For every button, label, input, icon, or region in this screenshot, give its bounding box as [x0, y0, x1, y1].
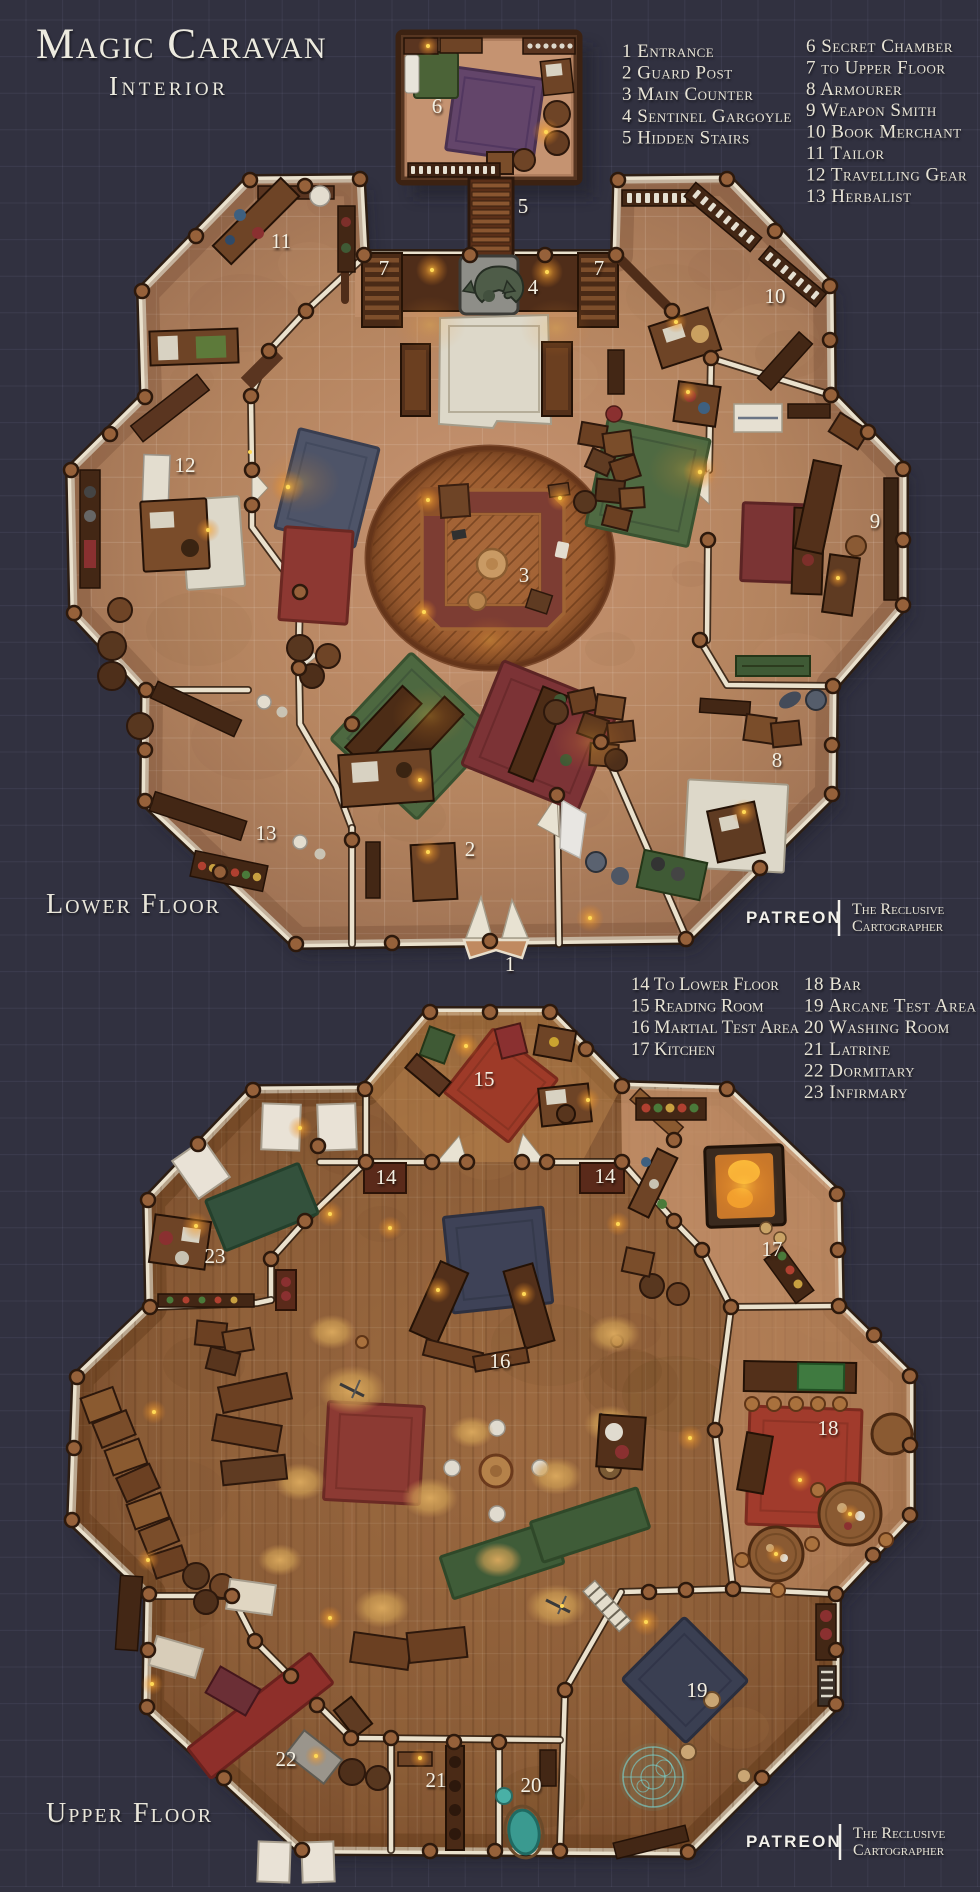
svg-text:4 Sentinel Gargoyle: 4 Sentinel Gargoyle [622, 106, 792, 127]
svg-text:Upper Floor: Upper Floor [46, 1798, 213, 1829]
svg-text:13 Herbalist: 13 Herbalist [806, 186, 912, 207]
svg-text:14: 14 [376, 1165, 398, 1189]
svg-text:18 Bar: 18 Bar [804, 974, 861, 995]
svg-text:The Reclusive: The Reclusive [853, 1825, 946, 1842]
svg-text:12: 12 [175, 453, 196, 477]
svg-text:15 Reading Room: 15 Reading Room [631, 997, 764, 1017]
svg-text:9: 9 [870, 509, 881, 533]
svg-text:1: 1 [505, 952, 516, 976]
svg-text:2 Guard Post: 2 Guard Post [622, 63, 733, 84]
svg-text:Cartographer: Cartographer [852, 918, 944, 935]
svg-text:Lower Floor: Lower Floor [46, 889, 221, 920]
svg-text:15: 15 [474, 1067, 495, 1091]
svg-text:3 Main Counter: 3 Main Counter [622, 84, 753, 105]
svg-text:16: 16 [490, 1349, 511, 1373]
svg-text:9 Weapon Smith: 9 Weapon Smith [806, 100, 937, 121]
svg-text:Interior: Interior [109, 71, 228, 101]
svg-text:3: 3 [519, 563, 530, 587]
svg-text:6: 6 [432, 94, 443, 118]
svg-text:10: 10 [765, 284, 786, 308]
svg-text:4: 4 [528, 275, 539, 299]
svg-text:PATREON: PATREON [746, 908, 842, 927]
svg-text:19 Arcane Test Area: 19 Arcane Test Area [804, 996, 977, 1017]
svg-text:23 Infirmary: 23 Infirmary [804, 1082, 908, 1103]
svg-text:The Reclusive: The Reclusive [852, 901, 945, 918]
svg-text:22 Dormitary: 22 Dormitary [804, 1060, 915, 1081]
svg-text:12 Travelling Gear: 12 Travelling Gear [806, 164, 967, 185]
svg-text:14: 14 [595, 1164, 617, 1188]
svg-text:11: 11 [271, 229, 291, 253]
svg-text:20: 20 [521, 1773, 542, 1797]
svg-text:16 Martial Test Area: 16 Martial Test Area [631, 1018, 800, 1038]
svg-text:Cartographer: Cartographer [853, 1842, 945, 1859]
svg-text:6 Secret Chamber: 6 Secret Chamber [806, 36, 953, 57]
svg-text:7 to Upper Floor: 7 to Upper Floor [806, 57, 946, 78]
svg-text:18: 18 [818, 1416, 839, 1440]
svg-text:17 Kitchen: 17 Kitchen [631, 1040, 716, 1060]
svg-text:2: 2 [465, 837, 476, 861]
svg-text:14 To Lower Floor: 14 To Lower Floor [631, 975, 779, 995]
svg-text:11 Tailor: 11 Tailor [806, 143, 885, 164]
svg-text:21 Latrine: 21 Latrine [804, 1039, 891, 1060]
svg-text:5: 5 [518, 194, 529, 218]
svg-text:8: 8 [772, 748, 783, 772]
svg-text:10 Book Merchant: 10 Book Merchant [806, 122, 962, 143]
svg-text:Magic Caravan: Magic Caravan [36, 21, 327, 68]
svg-text:13: 13 [256, 821, 277, 845]
svg-text:7: 7 [594, 256, 605, 280]
svg-text:1 Entrance: 1 Entrance [622, 41, 714, 62]
svg-text:17: 17 [762, 1237, 783, 1261]
svg-text:22: 22 [276, 1747, 297, 1771]
svg-text:23: 23 [205, 1244, 226, 1268]
svg-text:8 Armourer: 8 Armourer [806, 79, 902, 100]
svg-text:20 Washing Room: 20 Washing Room [804, 1017, 950, 1038]
svg-text:7: 7 [379, 256, 390, 280]
svg-text:5 Hidden Stairs: 5 Hidden Stairs [622, 127, 750, 148]
svg-text:21: 21 [426, 1768, 447, 1792]
svg-text:19: 19 [687, 1678, 708, 1702]
svg-text:PATREON: PATREON [746, 1832, 842, 1851]
